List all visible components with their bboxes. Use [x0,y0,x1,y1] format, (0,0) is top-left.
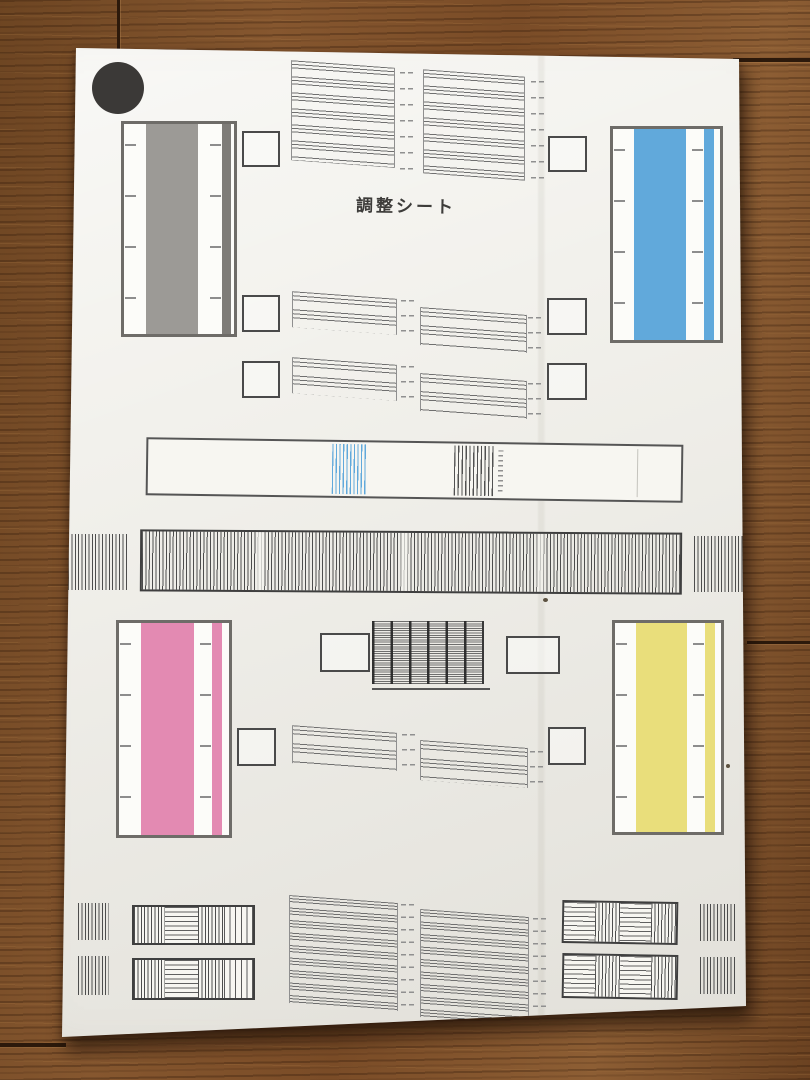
pattern-rect [562,953,679,1000]
vertical-stripes-segment [651,957,676,998]
dark-stripe-cluster [454,446,496,497]
pattern-rect [132,905,255,945]
magenta-ink-bar [116,620,232,838]
yellow-ink-bar [612,620,724,835]
cyan-ink-bar [610,126,723,343]
tick-strip [686,129,704,340]
tick-strip [198,124,222,334]
sparse-stripes-segment [224,960,253,998]
gray-ink-band [146,124,198,334]
alignment-line-group [291,60,395,168]
stripe-block [700,957,737,994]
alignment-dashes [401,366,414,398]
alignment-line-group [420,373,527,419]
check-square [242,131,280,167]
tick-strip [124,124,146,334]
check-square [242,361,280,398]
pattern-rect [132,958,255,1000]
calibration-sheet: 調整シート [0,0,810,1080]
horizontal-lines-segment [165,960,198,998]
yellow-ink-band [636,623,687,832]
pattern-rect [562,900,679,945]
alignment-dashes [531,81,544,185]
stripe-block [694,536,746,592]
yellow-ink-thin-band [705,623,715,832]
barcode-band [140,529,682,594]
gray-ink-thin-band [222,124,231,334]
horizontal-lines-segment [620,956,652,998]
faint-divider-line [637,449,639,497]
alignment-dashes [533,918,546,1023]
stripe-block [78,903,109,940]
check-square [242,295,280,332]
check-rect [506,636,560,674]
alignment-line-group [289,895,398,1011]
check-square [548,727,586,765]
vertical-stripes-segment [595,956,620,997]
paper-sheet-wrap: 調整シート [0,0,810,1080]
horizontal-lines-segment [564,902,596,942]
magenta-ink-band [141,623,194,835]
vertical-stripes-segment [198,960,224,998]
cyan-stripe-cluster [332,444,368,494]
alignment-line-group [292,291,397,335]
check-square [548,136,587,172]
vertical-stripes-segment [134,907,165,943]
dust-speck [726,764,730,768]
cyan-ink-band [634,129,685,340]
tick-strip [194,623,213,835]
check-rect [320,633,370,672]
tick-strip [119,623,141,835]
alignment-dashes [401,904,414,1012]
alignment-dashes [401,300,414,332]
tick-strip [613,129,634,340]
sparse-stripes-segment [224,907,253,943]
check-square [547,298,587,335]
alignment-dashes [528,317,541,349]
density-block-underline [372,688,490,690]
tick-strip [615,623,636,832]
photo-scene: 調整シート [0,0,810,1080]
alignment-dashes [402,734,415,766]
horizontal-lines-segment [564,955,596,997]
tick-strip [687,623,705,832]
sheet-title: 調整シート [356,191,456,218]
alignment-line-group [420,307,527,353]
alignment-line-group [292,357,397,401]
check-square [547,363,587,400]
vertical-stripes-segment [595,903,620,942]
alignment-dashes [530,751,543,783]
stripe-block [700,904,737,941]
horizontal-lines-segment [165,907,198,943]
vertical-stripes-segment [198,907,224,943]
density-column-block [372,621,484,684]
micro-ticks [498,450,505,494]
magenta-ink-thin-band [212,623,222,835]
vertical-stripes-segment [134,960,165,998]
horizontal-calibration-bar [146,437,684,502]
cyan-ink-thin-band [704,129,714,340]
alignment-dashes [528,383,541,415]
alignment-line-group [420,909,529,1025]
horizontal-lines-segment [620,903,652,943]
alignment-line-group [423,69,525,180]
alignment-dashes [400,72,413,172]
vertical-stripes-segment [651,904,676,943]
stripe-block [68,534,128,590]
registration-dot [92,62,144,114]
gray-ink-bar [121,121,237,337]
check-square [237,728,276,766]
dust-speck [543,598,548,602]
alignment-line-group [292,725,397,771]
alignment-line-group [420,740,528,788]
stripe-block [78,956,109,995]
